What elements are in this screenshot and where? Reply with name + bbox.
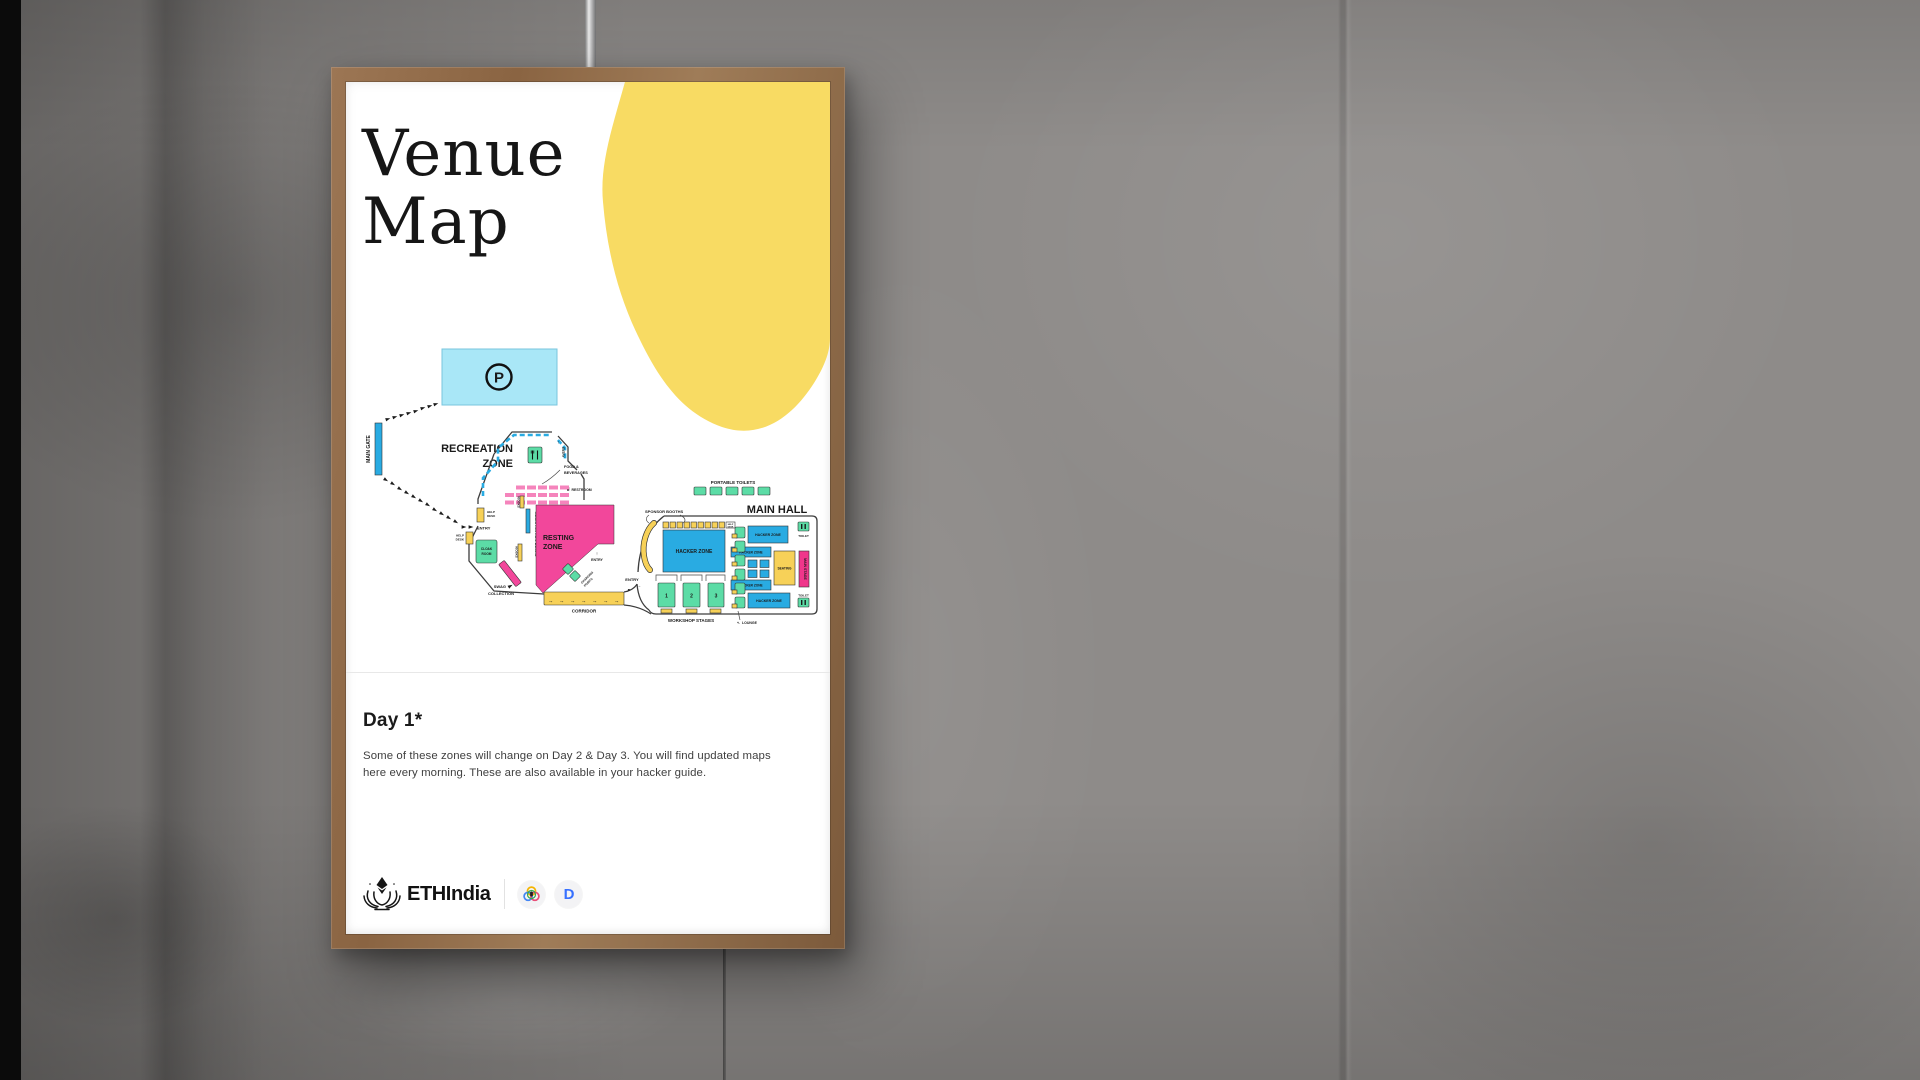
devfolio-badge: D [555,881,582,908]
color-rings-icon [522,885,541,904]
hall-help-desk: HELP DESK [726,522,735,528]
parking-label: P [494,370,504,387]
main-hall: MAIN HALL SPONSOR BOOTHS [637,504,817,625]
seating-area: SEATING [774,551,795,585]
recreation-tables [505,486,569,505]
hacker-tables [748,560,769,578]
svg-text:2: 2 [690,594,693,600]
svg-text:SEATING: SEATING [778,567,792,571]
recreation-entry-arrow: ↑ [557,440,560,446]
day-note: Some of these zones will change on Day 2… [363,748,771,781]
poster-frame: Venue Map P MAIN GATE [331,67,845,949]
hacker-zone-bottomright: HACKER ZONE [748,593,790,608]
svg-text:HACKER ZONE: HACKER ZONE [755,533,781,537]
poster-title-line2: Map [362,188,566,256]
svg-text:TOILET: TOILET [798,534,809,538]
svg-text:↖: ↖ [737,621,740,625]
charging-points: CHARGING POINTS [562,563,594,587]
hanging-rod [585,0,596,70]
svg-text:→: → [614,599,620,605]
svg-text:↑: ↑ [596,551,598,556]
recreation-entry-label: ENTRY [561,447,565,459]
poster-title-line1: Venue [362,120,566,188]
svg-text:RESTROOM: RESTROOM [572,488,592,492]
restroom-label: RESTROOM [567,487,592,492]
main-gate-label: MAIN GATE [366,434,372,462]
venue-map-diagram: P MAIN GATE E [346,344,830,644]
svg-text:→: → [603,599,609,605]
svg-text:SWAG: SWAG [494,584,506,589]
devfolio-d-icon: D [564,886,575,903]
swag-arrow [508,583,514,588]
hacker-zone-topright: HACKER ZONE [748,526,788,543]
svg-text:→: → [592,599,598,605]
svg-text:DESK: DESK [728,526,734,528]
svg-text:ENTRY: ENTRY [625,577,639,582]
workshop-stages: 1 2 3 WORKSHOP STAGES [656,575,725,623]
day-heading: Day 1* [363,710,422,732]
svg-text:FOOD &: FOOD & [564,465,579,469]
svg-text:ZONE: ZONE [543,544,563,551]
svg-text:→: → [548,599,554,605]
svg-text:PORTABLE TOILETS: PORTABLE TOILETS [711,480,756,485]
svg-text:3: 3 [715,594,718,600]
swag-collection: SWAG COLLECTION [488,560,521,596]
cloak-room: CLOAK ROOM [476,540,497,563]
svg-text:ROOM: ROOM [482,552,492,556]
corridor: → → → → → → → CORRIDOR [544,592,624,614]
registration-desk-bar [526,509,530,533]
footer-logos: ETHIndia D [362,877,592,911]
help-desk-upper: HELP DESK [477,508,496,522]
svg-text:→: → [559,599,565,605]
svg-text:ENTRY: ENTRY [591,558,603,562]
svg-text:→: → [570,599,576,605]
footpath-to-entry [383,477,473,528]
recreation-zone-title: RECREATION ZONE [441,443,513,470]
food-beverages-label: FOOD & BEVERAGES [542,465,588,484]
logo-divider [504,879,505,909]
svg-text:1: 1 [665,594,668,600]
main-gate: MAIN GATE [366,423,382,475]
svg-text:BEVERAGES: BEVERAGES [564,471,588,475]
kiosks-upper-label: KIOSKS [517,496,521,508]
resting-entry: ↑ ENTRY [591,551,603,562]
lounge-label: LOUNGE ↖ [737,611,758,625]
ethindia-wordmark: ETHIndia [407,883,490,906]
toilet-bottom: TOILET [798,594,809,608]
svg-text:↗: ↗ [626,588,630,594]
svg-text:TOILET: TOILET [798,594,809,598]
main-stage: MAIN STAGE [799,551,809,587]
main-hall-title: MAIN HALL [747,504,808,516]
svg-text:RESTING: RESTING [543,535,575,542]
day-note-line1: Some of these zones will change on Day 2… [363,748,771,765]
svg-text:→: → [581,599,587,605]
section-divider [346,672,830,673]
toilet-top: TOILET [798,522,809,538]
svg-text:MAIN STAGE: MAIN STAGE [803,558,807,580]
hanging-cable [723,947,726,1080]
portable-toilets: PORTABLE TOILETS [694,480,770,495]
venue-entry-label: ENTRY [477,526,491,531]
wall-left-edge [0,0,21,1080]
hacker-zone-main: HACKER ZONE [663,530,725,572]
day-note-line2: here every morning. These are also avail… [363,765,771,782]
help-desk-lower: HELP DESK [456,532,473,544]
svg-text:DESK: DESK [456,538,465,542]
ethindia-color-badge [518,881,545,908]
svg-text:HACKER ZONE: HACKER ZONE [756,599,782,603]
svg-text:SPONSOR BOOTHS: SPONSOR BOOTHS [645,509,684,514]
venue-map-poster: Venue Map P MAIN GATE [346,82,830,934]
svg-text:HACKER ZONE: HACKER ZONE [676,549,713,555]
lounge-seating [732,527,745,608]
footpath-to-parking [385,402,439,422]
svg-text:LOUNGE: LOUNGE [742,621,758,625]
corridor-label: CORRIDOR [572,609,597,614]
kiosks-lower-label: KIOSKS [515,546,519,558]
poster-title: Venue Map [362,120,566,256]
svg-text:DESK: DESK [487,514,496,518]
svg-text:COLLECTION: COLLECTION [488,591,514,596]
workshop-stages-label: WORKSHOP STAGES [668,618,714,623]
ethindia-lotus-icon [362,877,402,911]
food-counter-box [528,447,542,463]
svg-text:CLOAK: CLOAK [481,547,493,551]
parking-area: P [442,349,557,405]
